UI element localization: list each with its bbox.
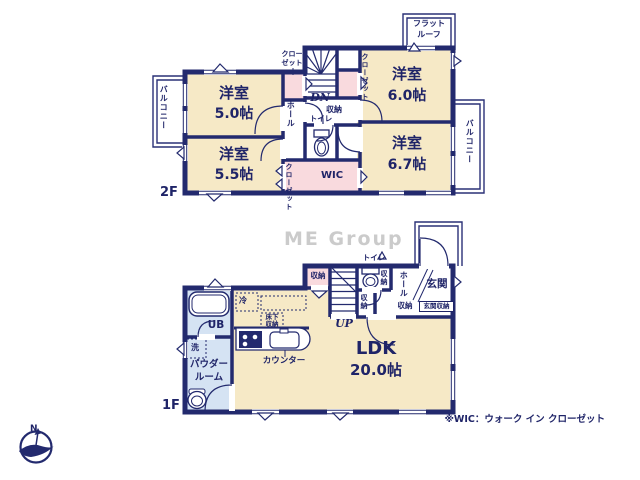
watermark: ME Group [284, 229, 404, 251]
closet-nw-label-l1: クロー [277, 50, 307, 58]
counter-label: カウンター [261, 357, 307, 367]
sink-icon [270, 329, 299, 348]
room-ne-size: 6.0帖 [366, 88, 448, 104]
flat-roof-label-l1: フラット [403, 19, 455, 28]
room-sw-name: 洋室 [189, 146, 279, 163]
room-ne-name: 洋室 [366, 66, 448, 83]
toilet-icon-1f [362, 268, 379, 288]
balcony-right-label: バルコニー [465, 119, 474, 164]
porch-railing [415, 222, 462, 266]
storage-hall-v-label: 収納 [360, 294, 368, 312]
closet-nw-label-l2: ゼット [277, 59, 307, 67]
floor1-label: 1F [162, 399, 180, 414]
powder-room-label-l1: パウダー [187, 360, 231, 371]
toilet-1f-label: トイレ [358, 254, 390, 263]
balcony-left-railing [153, 76, 185, 147]
hall-1f-label: ホール [399, 271, 408, 301]
closet-ne-label: クローゼット [361, 53, 369, 105]
entrance-storage-label: 玄関収納 [419, 301, 454, 312]
ldk-size: 20.0帖 [338, 362, 414, 379]
bathtub-icon [189, 292, 229, 316]
room-se-size: 6.7帖 [366, 157, 448, 173]
washer-label: 洗 [191, 343, 199, 352]
entrance-label: 玄関 [422, 278, 452, 290]
room-nw-size: 5.0帖 [189, 106, 279, 122]
storage-pink-label: 収納 [305, 272, 331, 281]
stairs-up-label: UP [331, 318, 357, 331]
wic-note: ※WIC：ウォーク イン クローゼット [420, 415, 605, 426]
balcony-left-label: バルコニー [159, 85, 168, 130]
stairs-down-label: DN [305, 92, 335, 105]
room-sw-size: 5.5帖 [189, 167, 279, 183]
toilet-icon-2f [314, 130, 329, 156]
room-se-name: 洋室 [366, 135, 448, 152]
ub-label: UB [196, 319, 236, 331]
floor2-label: 2F [160, 186, 178, 201]
toilet-2f-label: トイレ [302, 115, 340, 124]
wic-label: WIC [307, 170, 357, 182]
storage-hall-h-label: 収納 [392, 302, 418, 311]
flat-roof-label-l2: ルーフ [403, 30, 455, 39]
storage-2f-label: 収納 [319, 105, 349, 114]
stove-icon [239, 331, 262, 348]
storage-toilet-label: 収納 [380, 270, 388, 288]
floorplan-canvas: ME Group ※WIC：ウォーク イン クローゼット N 2F 洋室 5.0… [0, 0, 640, 480]
underfloor-label-l2: 収納 [262, 321, 282, 328]
washbasin-icon [188, 389, 206, 409]
hall-2f-label: ホール [286, 101, 295, 137]
ldk-name: LDK [338, 339, 414, 360]
stairs-1f [330, 267, 357, 311]
compass-north-label: N [30, 424, 38, 434]
room-nw-name: 洋室 [189, 85, 279, 102]
fridge-label: 冷 [239, 296, 247, 305]
powder-room-label-l2: ルーム [187, 373, 231, 384]
closet-sw-label: クローゼット [284, 163, 294, 190]
